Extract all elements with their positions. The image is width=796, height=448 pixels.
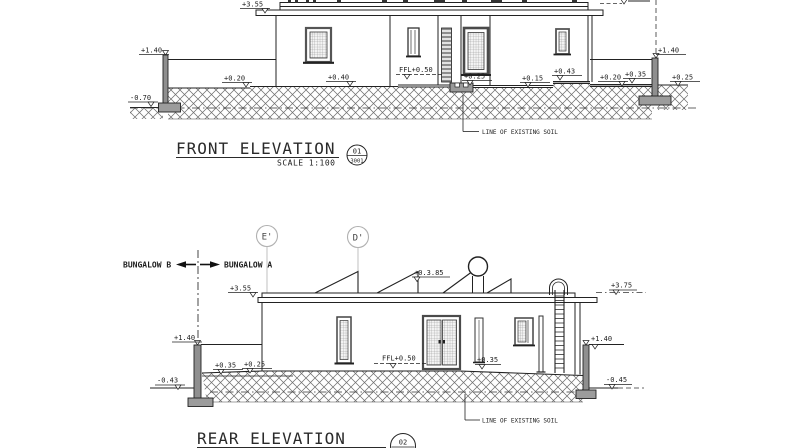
level-label-front-right-wall: +1.40 (656, 47, 686, 55)
svg-text:-0.43: -0.43 (157, 377, 178, 385)
level-label-rear-right-wall: +1.40 (591, 335, 612, 349)
elevations-drawing: +3.55 +1.40 -0.70 +0.20 +0.40 FFL+0.50 +… (0, 0, 796, 448)
level-label-rear-roof: +3.55 (228, 285, 258, 298)
svg-text:FFL+0.50: FFL+0.50 (399, 66, 433, 74)
front-roof-ladder (442, 28, 452, 82)
door-handle-left (439, 340, 441, 344)
level-label-rear-solar: +0.3.85 (412, 269, 450, 282)
svg-text:FFL+0.50: FFL+0.50 (382, 355, 416, 363)
svg-text:+0.43: +0.43 (554, 68, 575, 76)
svg-text:+1.40: +1.40 (658, 47, 679, 55)
front-title: FRONT ELEVATION (176, 139, 336, 158)
svg-text:+0.25: +0.25 (464, 73, 485, 81)
front-window-3 (554, 29, 572, 55)
rear-double-door (423, 316, 460, 369)
rear-elevation-view: E' D' BUNGALOW B BUNGALOW A (123, 226, 646, 448)
front-roof (256, 3, 603, 16)
svg-text:+1.40: +1.40 (591, 335, 612, 343)
level-label-front-terrace-043: +0.43 (552, 68, 582, 81)
rear-title: REAR ELEVATION (197, 429, 346, 448)
solar-water-tank (469, 257, 488, 293)
level-label-front-terrace-040: +0.40 (326, 74, 356, 87)
level-label-front-left-ground: -0.70 (128, 94, 158, 107)
front-window-2 (406, 28, 421, 57)
svg-text:+0.20: +0.20 (224, 75, 245, 83)
front-scale: SCALE 1:100 (277, 159, 335, 168)
svg-text:+0.25: +0.25 (672, 74, 693, 82)
rear-pipe-strip (537, 316, 546, 372)
svg-text:01: 01 (353, 148, 361, 156)
level-label-front-terrace-035: +0.35 (623, 71, 651, 84)
svg-text:+0.35: +0.35 (477, 356, 498, 364)
level-label-front-right-ground: +0.25 (670, 74, 700, 87)
svg-text:3001: 3001 (350, 159, 363, 165)
rear-tag-bubble: 02 (391, 434, 416, 448)
rear-window-1 (335, 317, 355, 364)
level-label-rear-door-035: +0.35 (475, 356, 501, 369)
front-top-right-level-marker (600, 0, 650, 4)
svg-text:+3.75: +3.75 (611, 282, 632, 290)
svg-text:E': E' (262, 233, 273, 243)
level-label-rear-ffl: FFL+0.50 (374, 355, 428, 369)
svg-text:+3.55: +3.55 (230, 285, 251, 293)
rear-soil-note: LINE OF EXISTING SOIL (482, 418, 558, 425)
bungalow-a-label: BUNGALOW A (224, 261, 272, 270)
front-title-block: FRONT ELEVATION SCALE 1:100 01 3001 (176, 139, 367, 168)
level-label-rear-roof-right: +3.75 (596, 282, 646, 295)
svg-text:02: 02 (399, 439, 407, 447)
rear-right-boundary-wall (576, 341, 644, 399)
door-handle-right (443, 340, 445, 344)
front-soil-note: LINE OF EXISTING SOIL (482, 129, 558, 136)
front-tag-bubble: 01 3001 (347, 145, 367, 165)
svg-text:+0.20: +0.20 (600, 74, 621, 82)
front-door (461, 28, 491, 75)
svg-text:+0.15: +0.15 (522, 75, 543, 83)
svg-text:+0.3.85: +0.3.85 (414, 269, 444, 277)
svg-text:-0.45: -0.45 (606, 376, 627, 384)
front-window-1 (303, 28, 334, 63)
rear-roof (258, 293, 597, 303)
svg-text:+0.40: +0.40 (328, 74, 349, 82)
bungalow-b-label: BUNGALOW B (123, 261, 171, 270)
svg-text:+1.40: +1.40 (141, 47, 162, 55)
svg-text:-0.70: -0.70 (130, 94, 151, 102)
bungalow-direction-labels: BUNGALOW B BUNGALOW A (123, 250, 272, 343)
svg-text:+0.35: +0.35 (215, 362, 236, 370)
svg-text:+0.35: +0.35 (625, 71, 646, 79)
grid-bubble-e: E' (257, 226, 278, 294)
level-label-front-roof: +3.55 (240, 1, 270, 14)
rear-ground (202, 371, 583, 402)
rear-window-2 (513, 318, 535, 346)
svg-text:+1.40: +1.40 (174, 334, 195, 342)
svg-text:+0.25: +0.25 (244, 361, 265, 369)
front-elevation-view: +3.55 +1.40 -0.70 +0.20 +0.40 FFL+0.50 +… (128, 0, 700, 168)
rear-title-block: REAR ELEVATION 02 (197, 429, 416, 448)
level-label-front-ffl: FFL+0.50 (396, 66, 442, 79)
level-label-rear-right-ground: -0.45 (604, 376, 632, 389)
svg-text:+3.55: +3.55 (242, 1, 263, 9)
front-ground (130, 82, 697, 120)
drawing-sheet: +3.55 +1.40 -0.70 +0.20 +0.40 FFL+0.50 +… (0, 0, 796, 448)
svg-text:D': D' (353, 234, 364, 244)
level-label-front-terrace-020: +0.20 (222, 75, 252, 88)
